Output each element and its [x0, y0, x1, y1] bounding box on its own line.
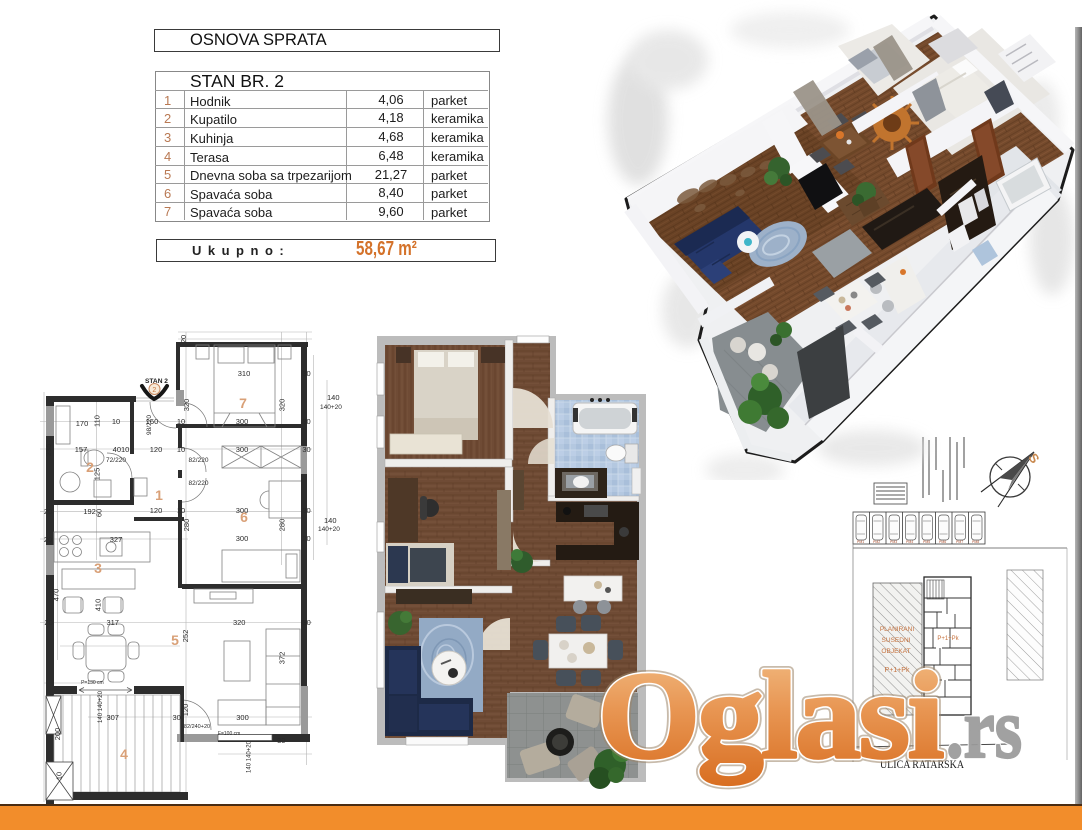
svg-text:30: 30 [302, 417, 310, 426]
svg-text:98/220: 98/220 [146, 415, 153, 435]
svg-text:PM7: PM7 [956, 540, 963, 544]
svg-text:6: 6 [240, 509, 248, 525]
svg-text:140+20: 140+20 [318, 526, 340, 533]
svg-text:PM8: PM8 [972, 540, 979, 544]
svg-text:60: 60 [95, 509, 104, 517]
svg-text:3: 3 [94, 560, 102, 576]
svg-text:300: 300 [236, 713, 249, 722]
svg-text:.rs: .rs [946, 680, 1022, 776]
svg-text:120: 120 [150, 506, 163, 515]
svg-text:10: 10 [177, 417, 185, 426]
svg-text:140: 140 [327, 393, 340, 402]
svg-text:82/220: 82/220 [189, 480, 209, 487]
svg-text:PM3: PM3 [890, 540, 897, 544]
svg-text:252: 252 [181, 630, 190, 643]
svg-text:140 140+20: 140 140+20 [247, 740, 253, 773]
svg-text:10: 10 [177, 445, 185, 454]
svg-text:4010: 4010 [113, 445, 130, 454]
svg-text:320: 320 [182, 399, 191, 412]
svg-text:20: 20 [44, 618, 52, 627]
svg-text:300: 300 [236, 534, 249, 543]
svg-text:300: 300 [236, 445, 249, 454]
svg-text:170: 170 [76, 419, 89, 428]
svg-text:317: 317 [106, 618, 119, 627]
svg-text:82/240+20: 82/240+20 [184, 724, 210, 730]
svg-text:20: 20 [302, 534, 310, 543]
svg-text:F=100 cm: F=100 cm [218, 731, 240, 737]
svg-text:2: 2 [152, 387, 156, 394]
svg-text:320: 320 [233, 618, 246, 627]
svg-text:30: 30 [302, 445, 310, 454]
svg-text:372: 372 [277, 652, 286, 665]
svg-text:20: 20 [44, 507, 52, 516]
svg-text:20: 20 [44, 535, 52, 544]
svg-text:120: 120 [181, 704, 190, 717]
svg-text:280: 280 [182, 519, 191, 532]
svg-text:470: 470 [51, 589, 60, 602]
svg-text:110: 110 [93, 415, 102, 427]
svg-text:30: 30 [302, 506, 310, 515]
svg-text:7: 7 [239, 395, 247, 411]
svg-text:5: 5 [171, 632, 179, 648]
svg-text:280: 280 [278, 519, 287, 532]
svg-text:PM6: PM6 [939, 540, 946, 544]
svg-text:P=130 cm: P=130 cm [81, 680, 104, 686]
svg-text:30: 30 [277, 736, 285, 745]
svg-text:140 140+20: 140 140+20 [98, 690, 104, 723]
svg-text:10: 10 [112, 417, 120, 426]
svg-text:120: 120 [150, 445, 163, 454]
svg-text:320: 320 [278, 399, 287, 412]
svg-text:72/220: 72/220 [106, 457, 126, 464]
svg-text:4: 4 [120, 746, 128, 762]
svg-text:PM4: PM4 [906, 540, 913, 544]
svg-text:2: 2 [86, 459, 94, 475]
svg-text:410: 410 [94, 599, 103, 612]
svg-text:30: 30 [173, 713, 181, 722]
svg-text:PM5: PM5 [923, 540, 930, 544]
svg-text:307: 307 [106, 713, 119, 722]
svg-text:327: 327 [110, 535, 123, 544]
svg-text:200: 200 [53, 728, 62, 741]
svg-text:235: 235 [44, 444, 53, 457]
svg-text:82/220: 82/220 [189, 457, 209, 464]
svg-text:Oglasi: Oglasi [598, 647, 943, 785]
svg-text:PM2: PM2 [873, 540, 880, 544]
svg-text:PM1: PM1 [857, 540, 864, 544]
svg-text:30: 30 [302, 369, 310, 378]
svg-text:30: 30 [303, 618, 311, 627]
svg-text:300: 300 [236, 417, 249, 426]
svg-text:310: 310 [238, 369, 251, 378]
svg-text:157: 157 [75, 445, 88, 454]
svg-text:10: 10 [55, 772, 64, 780]
svg-text:140+20: 140+20 [320, 404, 342, 411]
svg-text:10: 10 [177, 506, 185, 515]
svg-text:20: 20 [179, 335, 188, 343]
svg-text:140: 140 [324, 516, 337, 525]
svg-text:1: 1 [155, 487, 163, 503]
